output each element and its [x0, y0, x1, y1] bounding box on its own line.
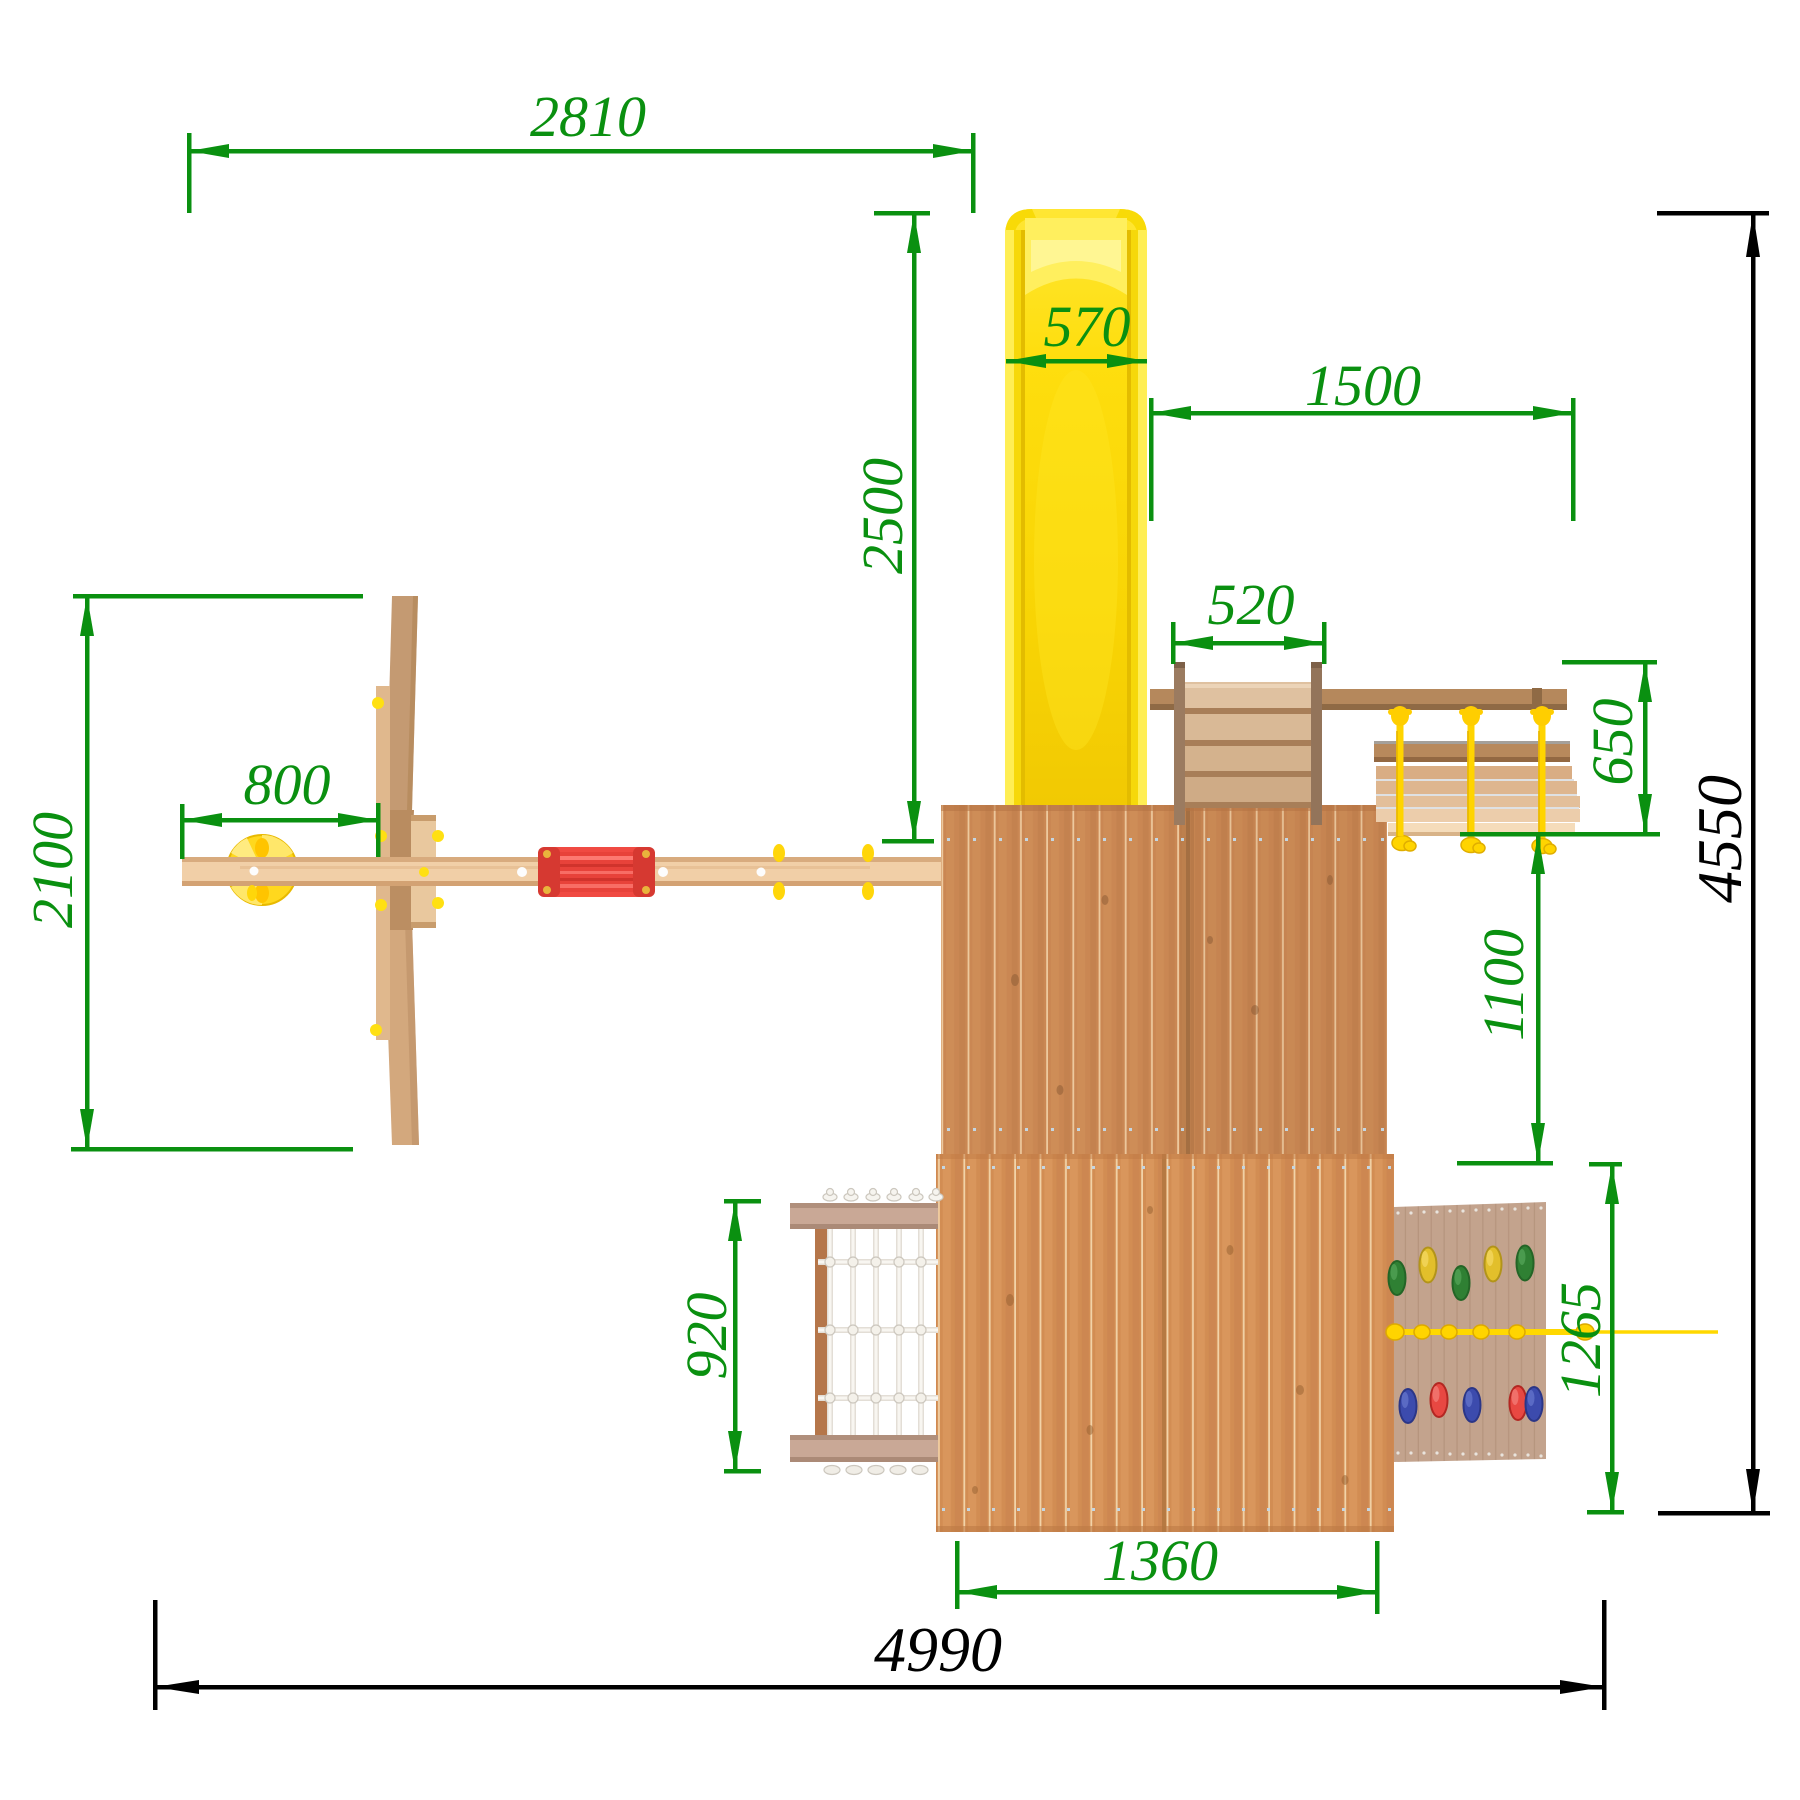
svg-text:570: 570: [1044, 294, 1131, 359]
svg-text:2500: 2500: [850, 458, 915, 574]
svg-text:520: 520: [1208, 572, 1295, 637]
svg-text:800: 800: [244, 752, 331, 817]
svg-text:1500: 1500: [1305, 353, 1421, 418]
svg-text:2100: 2100: [20, 812, 85, 928]
svg-text:1360: 1360: [1102, 1528, 1218, 1593]
svg-text:650: 650: [1580, 699, 1645, 786]
svg-text:1265: 1265: [1548, 1282, 1613, 1398]
svg-text:2810: 2810: [530, 84, 646, 149]
svg-text:920: 920: [674, 1293, 739, 1380]
svg-text:4550: 4550: [1684, 775, 1755, 903]
svg-text:1100: 1100: [1471, 929, 1536, 1041]
svg-text:4990: 4990: [874, 1614, 1002, 1685]
